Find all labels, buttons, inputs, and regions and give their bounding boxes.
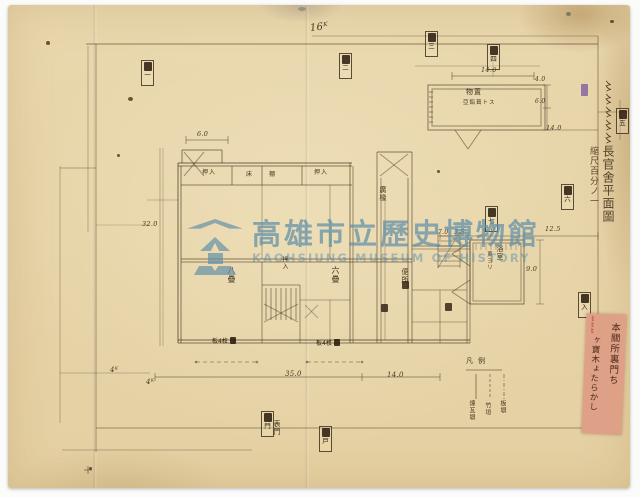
paper-speck: [89, 467, 92, 470]
annotation-16k: 16ᴷ: [309, 21, 328, 34]
reference-tag: 四: [487, 44, 500, 70]
room-label-toko: 床: [246, 169, 253, 178]
reference-tag: 一: [141, 60, 154, 86]
gate-bath-detail: [440, 232, 598, 304]
tag-char: 一: [144, 72, 151, 79]
tag-char: 五: [619, 120, 626, 127]
tag-char: 四: [490, 56, 497, 63]
annotation-4k: 4ᴷ: [110, 366, 118, 374]
shed-note: 亞鉛葺トス: [463, 98, 496, 106]
tag-char: 門: [264, 423, 271, 430]
tag-char: 三: [428, 43, 435, 50]
bath-label: 浴室: [495, 245, 505, 261]
annotation-4k: 4ᴷ: [146, 378, 154, 386]
drawing-title-vertical: 〻〻〻〻〻長官舍平面圖: [600, 80, 617, 223]
dimension: 6.0: [535, 98, 545, 105]
paper-speck: [610, 20, 614, 23]
ink-stamp-blot: [334, 339, 340, 346]
room-label-6mat: 六疊: [330, 266, 341, 284]
tag-char: 七: [488, 218, 495, 225]
slip-text-left: ヶ寶木ょたらかし: [586, 335, 601, 411]
seal-stamp-icon: [619, 110, 627, 119]
dimension-32: 32.0: [142, 220, 158, 228]
count-note-text: 板4枚: [212, 336, 228, 345]
shed-label: 物置: [466, 87, 482, 97]
floor-plan-drawing: [0, 0, 640, 497]
paper-speck: [298, 7, 306, 11]
seal-stamp-icon: [564, 186, 572, 195]
scanned-drawing-page: 16ᴷ 4ᴷ 4ᴷ 32.0 6.0 14.0 4.0 6.0 14.0 7.0…: [0, 0, 640, 497]
slip-text-right: 本關所裏門ち: [605, 322, 622, 386]
room-label-closet: 押入: [202, 167, 216, 176]
drawing-scale-note: 縮尺百分ノ一: [587, 146, 600, 206]
seal-stamp-icon: [144, 62, 152, 71]
room-label-closet: 押入: [280, 256, 289, 270]
dimension: 14.0: [546, 124, 562, 132]
reference-tag: 六: [561, 184, 574, 210]
paper-speck: [128, 97, 133, 101]
east-annex: [412, 232, 470, 343]
tag-char: 入: [581, 304, 588, 311]
room-label-8mat: 八疊: [226, 266, 237, 284]
seal-stamp-icon: [488, 208, 496, 217]
purple-seal-icon: [581, 84, 588, 96]
count-note: 板4枚: [212, 336, 236, 345]
reference-tag: 七: [485, 206, 498, 232]
dimension: 12.5: [545, 225, 561, 233]
paper-speck: [46, 41, 50, 45]
storage-shed-detail: [428, 57, 598, 149]
seal-stamp-icon: [445, 303, 452, 311]
reference-tag: 戸: [319, 426, 332, 452]
legend-item-brick-fence: 煉瓦塀: [467, 400, 476, 421]
dimension: 3.5: [454, 229, 464, 236]
dimension: 4.0: [535, 76, 545, 83]
seal-stamp-icon: [264, 413, 272, 422]
dimension: 9.0: [526, 265, 537, 273]
dimension: 6.0: [197, 130, 208, 138]
tag-char: 六: [564, 196, 571, 203]
seal-stamp-icon: [381, 304, 388, 312]
legend-item-bamboo-fence: 竹垣: [483, 402, 492, 416]
legend-item-board-fence: 板塀: [498, 400, 507, 414]
room-label-closet: 押入: [314, 167, 328, 176]
reference-tag: 三: [425, 31, 438, 57]
seal-stamp-icon: [428, 33, 436, 42]
dimension: 35.0: [285, 370, 302, 378]
staircase-hatch: [264, 288, 298, 322]
count-note: 板4枚: [316, 338, 340, 347]
room-label-veranda: 廣椽: [378, 186, 388, 202]
dimension: 14.0: [387, 371, 404, 379]
slip-red-note: 〻〻〻: [587, 315, 597, 333]
reference-tag: 門: [261, 411, 274, 437]
seal-stamp-icon: [490, 46, 498, 55]
reference-tag: 二: [339, 53, 352, 79]
tag-char: 二: [342, 65, 349, 72]
seal-stamp-icon: [342, 55, 350, 64]
bath-note: 東ヨリ: [485, 251, 493, 271]
red-paper-slip: 本關所裏門ち ヶ寶木ょたらかし 〻〻〻: [581, 313, 626, 435]
paper-speck: [437, 170, 440, 173]
seal-stamp-icon: [581, 294, 589, 303]
reference-tag: 五: [616, 108, 629, 134]
room-label-tana: 棚: [269, 169, 276, 178]
paper-speck: [566, 12, 571, 16]
dimension: 7.0: [438, 229, 448, 236]
legend-header: 凡例: [466, 356, 490, 366]
ink-stamp-blot: [230, 337, 236, 344]
tag-char: 戸: [322, 438, 329, 445]
paper-speck: [117, 154, 120, 157]
fence-legend-lines: [466, 370, 504, 399]
seal-stamp-icon: [322, 428, 330, 437]
count-note-text: 板4枚: [316, 338, 332, 347]
veranda-corridor: [377, 152, 412, 343]
seal-stamp-icon: [402, 281, 409, 289]
